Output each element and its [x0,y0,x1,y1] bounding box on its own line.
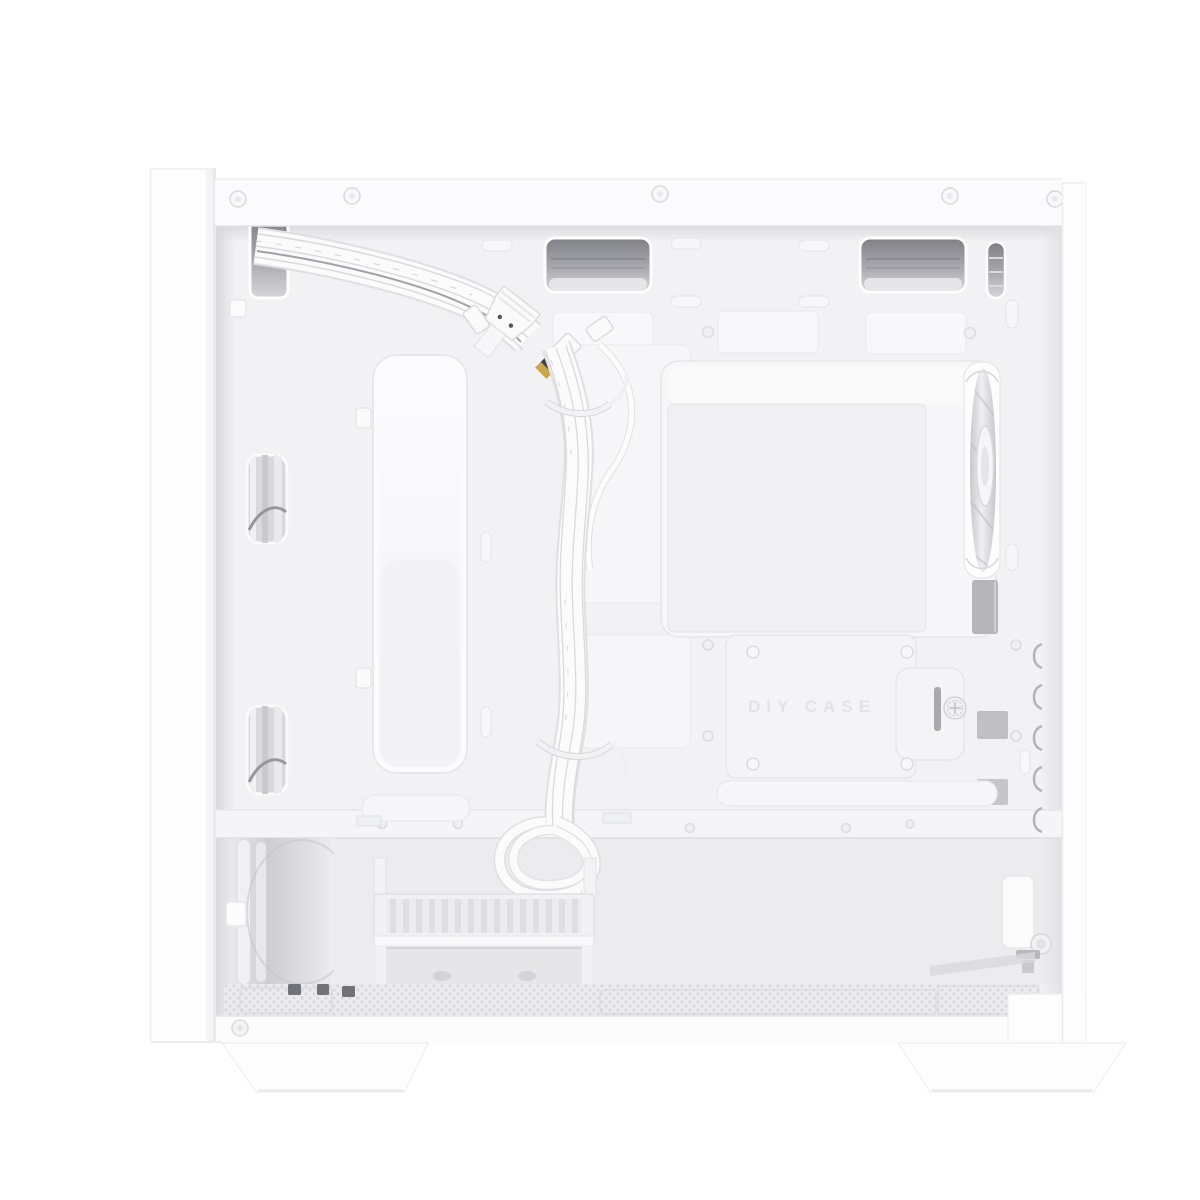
strap-anchor-slot [987,242,1005,298]
front-foot [222,1043,428,1092]
latch-slot [934,687,941,731]
mobo-opening [661,361,996,637]
product-photo-pc-case: DIY CASE [0,0,1200,1200]
bottom-floor [215,984,1086,1043]
tray-thumbscrew [944,697,966,719]
rear-panel-edge [1062,182,1086,1043]
rear-foot [898,1043,1126,1092]
pc-case-illustration: DIY CASE [0,0,1200,1200]
psu-bay-wall [215,838,1062,984]
front-fan-slot-lower [247,706,287,794]
tray-embossed-label: DIY CASE [748,697,876,716]
top-rail [215,178,1063,226]
filter-pull-tab [226,902,246,926]
vented-tray-ribs [386,899,582,933]
bottom-rail [215,1016,1086,1043]
front-panel-seam [213,168,216,1043]
radiator-cutout [373,355,467,773]
front-fan-slot-upper [247,455,287,543]
front-panel-clip [230,300,246,317]
tray-bottom-flange [215,810,1062,838]
